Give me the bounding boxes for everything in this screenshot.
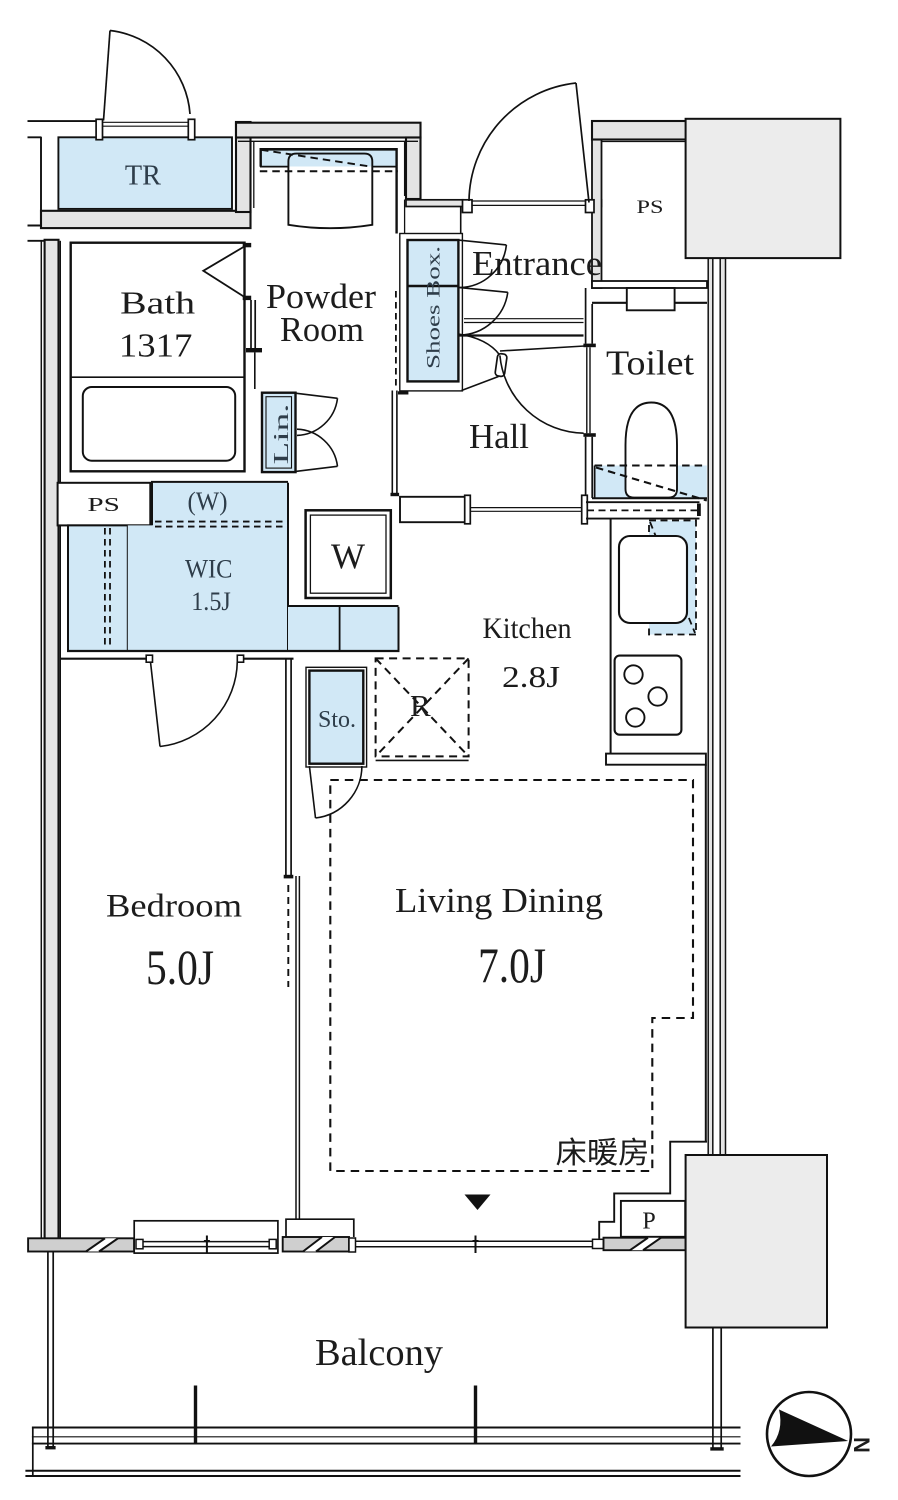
svg-text:5.0J: 5.0J <box>146 939 214 995</box>
svg-text:Kitchen: Kitchen <box>483 612 572 645</box>
svg-text:7.0J: 7.0J <box>478 937 546 993</box>
svg-text:PS: PS <box>87 494 120 516</box>
svg-text:Bedroom: Bedroom <box>106 889 242 925</box>
svg-text:床暖房: 床暖房 <box>556 1137 650 1170</box>
svg-text:1.5J: 1.5J <box>191 587 231 616</box>
svg-text:R: R <box>410 688 431 723</box>
svg-text:P: P <box>642 1209 655 1235</box>
svg-text:Room: Room <box>280 310 364 349</box>
svg-text:W: W <box>331 536 365 576</box>
svg-text:Sto.: Sto. <box>318 707 356 733</box>
svg-text:Shoes Box.: Shoes Box. <box>424 246 445 369</box>
svg-text:2.8J: 2.8J <box>502 659 560 694</box>
svg-text:PS: PS <box>637 197 664 218</box>
svg-text:Hall: Hall <box>469 417 529 456</box>
svg-text:TR: TR <box>125 161 161 192</box>
svg-text:(W): (W) <box>188 487 228 516</box>
svg-text:Living Dining: Living Dining <box>395 881 603 920</box>
svg-text:Balcony: Balcony <box>315 1332 443 1374</box>
svg-text:Lin.: Lin. <box>269 404 293 465</box>
svg-text:Bath: Bath <box>120 285 195 321</box>
svg-text:Toilet: Toilet <box>606 344 694 383</box>
svg-text:Entrance: Entrance <box>472 244 602 283</box>
svg-text:N: N <box>849 1437 874 1453</box>
svg-text:WIC: WIC <box>185 555 233 584</box>
svg-text:1317: 1317 <box>119 327 193 364</box>
